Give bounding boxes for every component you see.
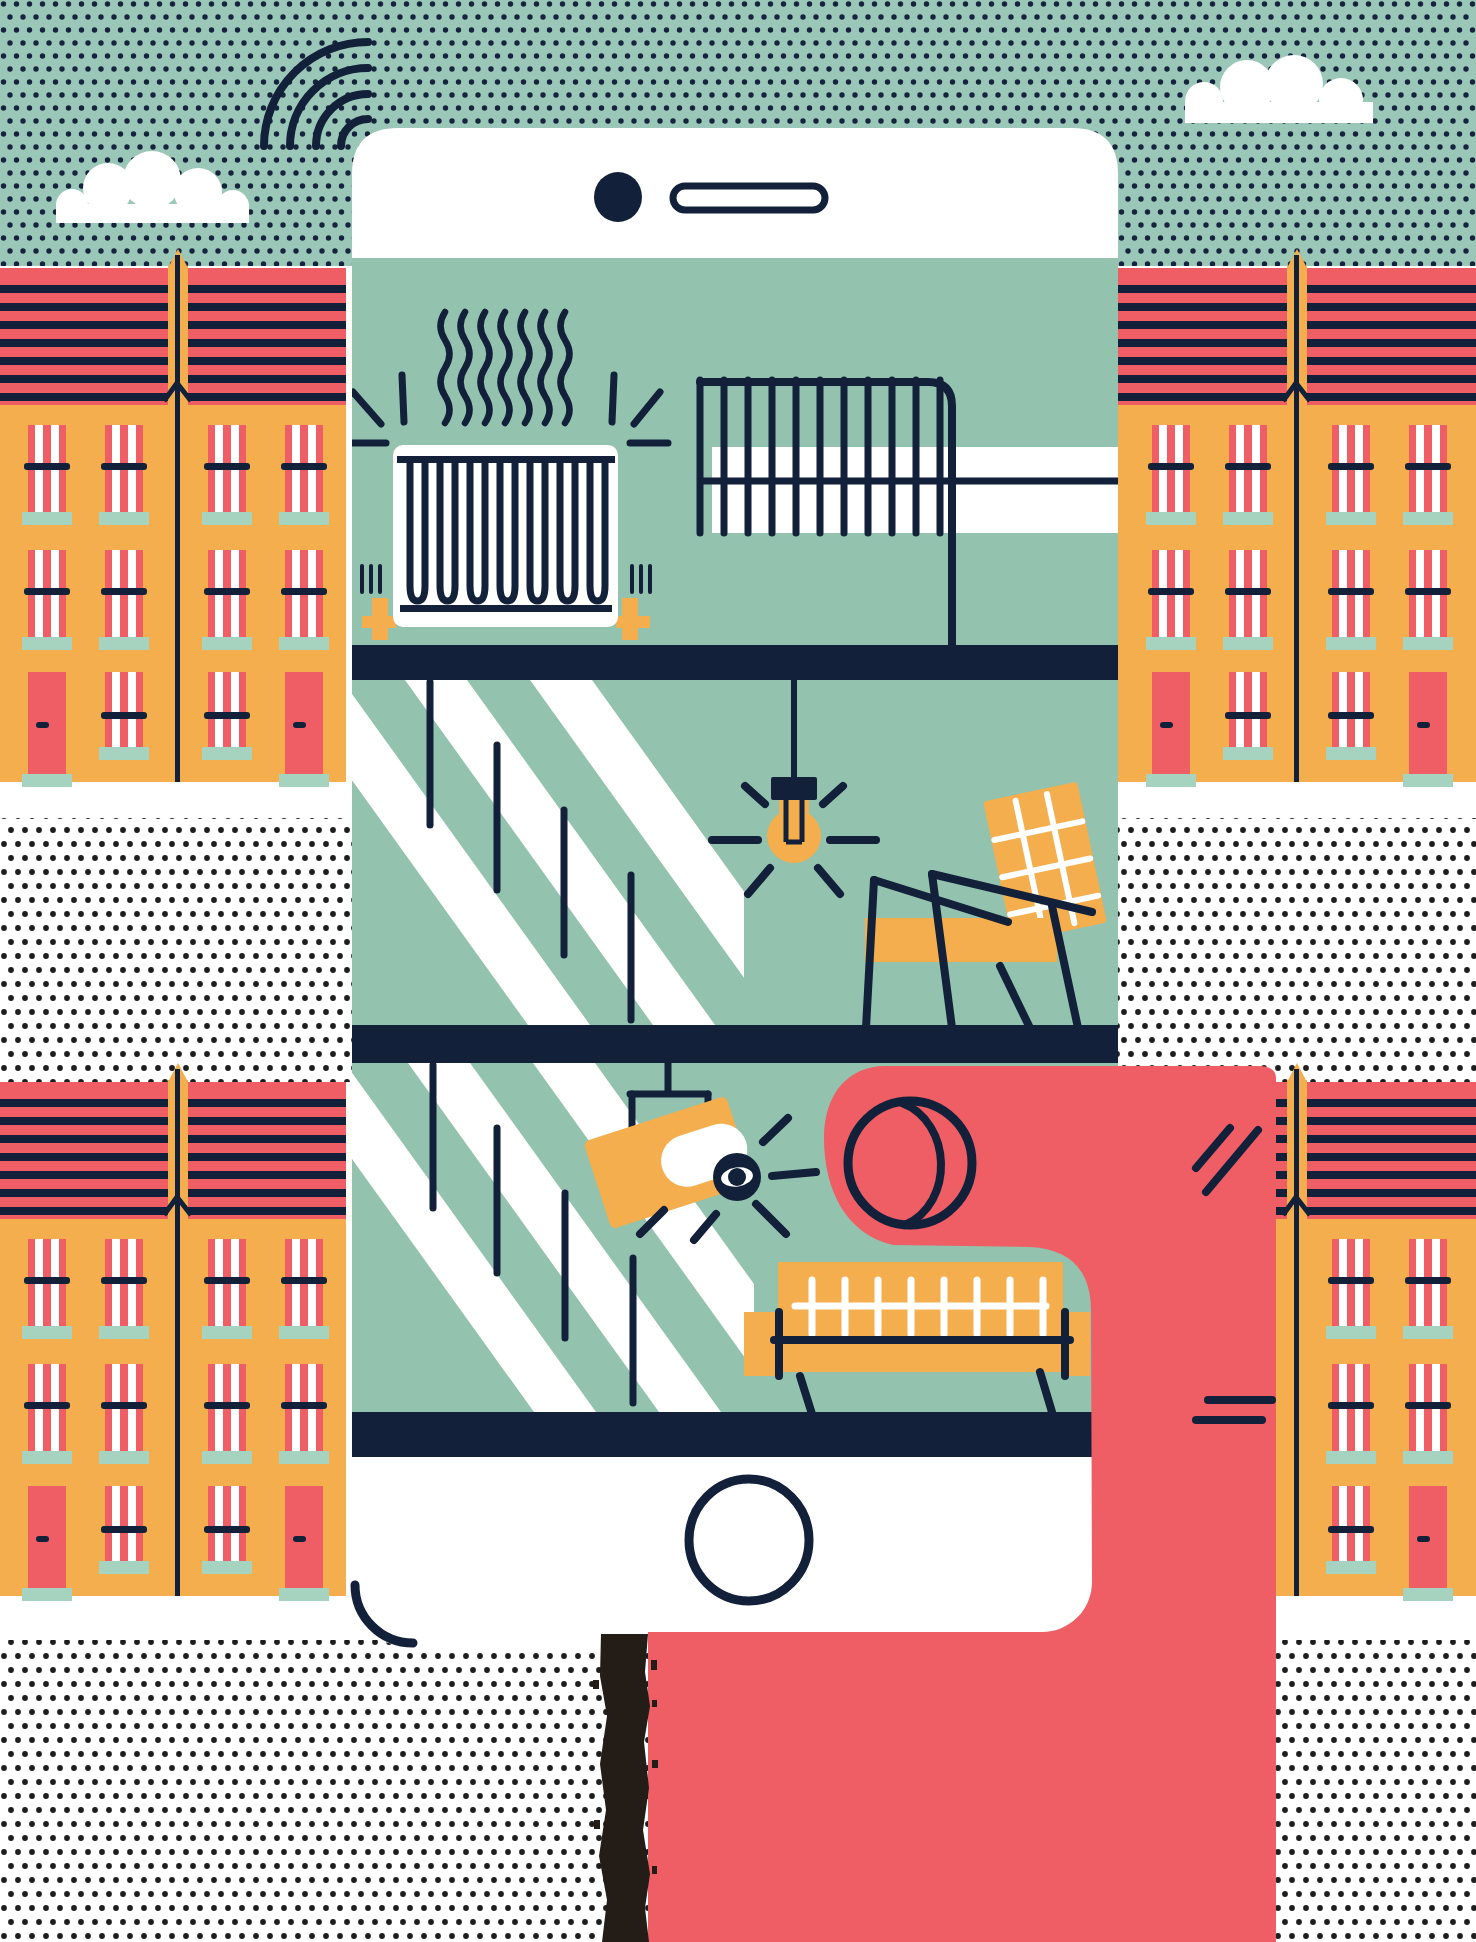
phone-screen	[280, 258, 1118, 1457]
speaker-grille-icon	[673, 186, 825, 210]
home-button	[689, 1479, 809, 1601]
smart-home-illustration: Editorial illustration: hand holding a s…	[0, 0, 1476, 1942]
floor-slab-top	[352, 645, 1118, 680]
floor-slab-bottom	[352, 1412, 1118, 1457]
illustration-stage: Editorial illustration: hand holding a s…	[0, 0, 1476, 1942]
phone	[280, 128, 1118, 1645]
houses-row-bottom-left	[0, 1063, 346, 1601]
floor-slab-middle	[352, 1025, 1118, 1063]
houses-row-top-left	[0, 249, 346, 787]
front-camera-icon	[594, 172, 642, 222]
houses-row-top-right	[1118, 249, 1476, 787]
